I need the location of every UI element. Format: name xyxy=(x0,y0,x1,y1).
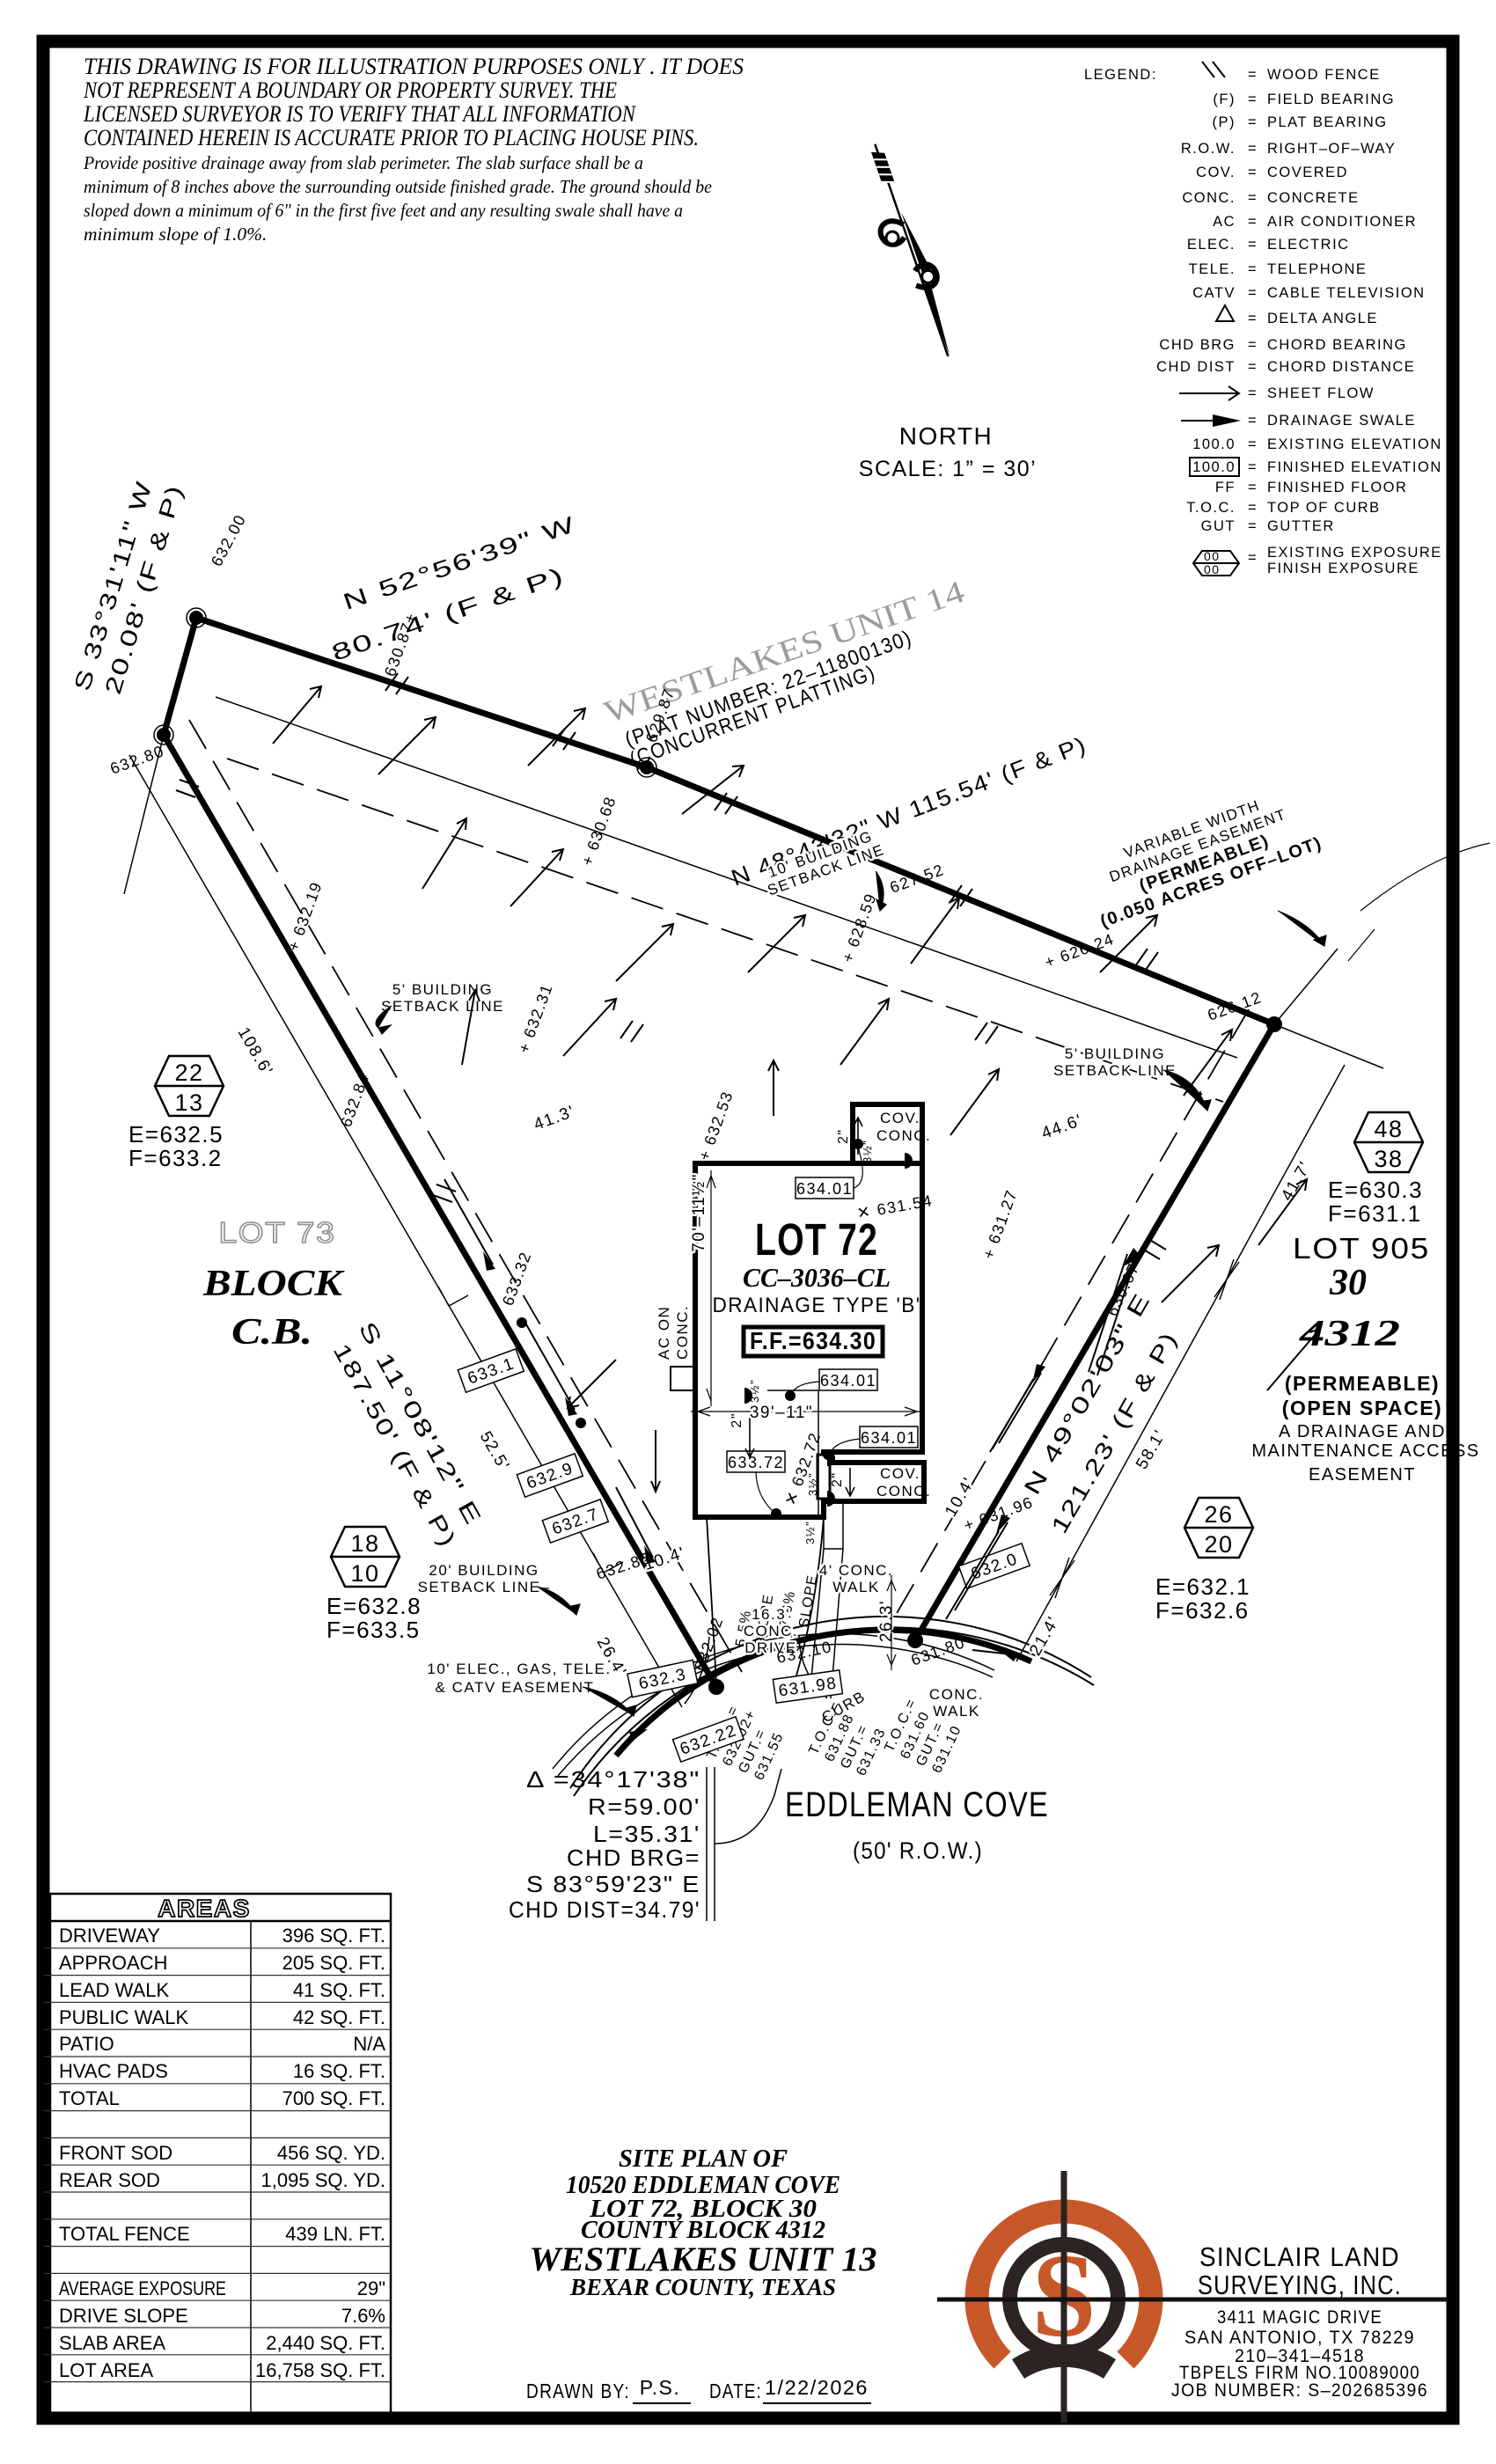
svg-text:100.0: 100.0 xyxy=(1192,459,1236,475)
svg-text:SETBACK LINE–: SETBACK LINE– xyxy=(418,1579,551,1595)
svg-text:GUTTER: GUTTER xyxy=(1267,518,1335,534)
svg-text:TELE.: TELE. xyxy=(1189,261,1236,277)
svg-text:F=633.5: F=633.5 xyxy=(326,1617,421,1643)
svg-text:396 SQ. FT.: 396 SQ. FT. xyxy=(282,1925,385,1947)
svg-text:1/22/2026: 1/22/2026 xyxy=(765,2376,869,2399)
svg-text:LOT AREA: LOT AREA xyxy=(59,2359,154,2381)
svg-text:38: 38 xyxy=(1374,1146,1403,1172)
svg-text:F=631.1: F=631.1 xyxy=(1328,1200,1422,1227)
svg-text:EXISTING ELEVATION: EXISTING ELEVATION xyxy=(1267,436,1442,452)
svg-text:CHORD DISTANCE: CHORD DISTANCE xyxy=(1267,359,1415,375)
svg-text:16.3': 16.3' xyxy=(752,1606,790,1623)
svg-text:CC–3036–CL: CC–3036–CL xyxy=(743,1262,891,1293)
svg-text:3411 MAGIC DRIVE: 3411 MAGIC DRIVE xyxy=(1217,2307,1382,2328)
svg-text:sloped down a minimum of 6" in: sloped down a minimum of 6" in the first… xyxy=(84,200,683,221)
svg-text:REAR SOD: REAR SOD xyxy=(59,2169,160,2191)
svg-text:THIS DRAWING IS FOR ILLUSTRATI: THIS DRAWING IS FOR ILLUSTRATION PURPOSE… xyxy=(84,53,744,79)
svg-text:DRAINAGE TYPE 'B': DRAINAGE TYPE 'B' xyxy=(713,1294,921,1317)
svg-text:=: = xyxy=(1248,359,1258,375)
svg-text:22: 22 xyxy=(174,1060,203,1086)
svg-text:FINISHED FLOOR: FINISHED FLOOR xyxy=(1267,480,1407,495)
svg-text:=: = xyxy=(1248,165,1258,180)
svg-text:R=59.00': R=59.00' xyxy=(588,1793,700,1820)
svg-text:42 SQ. FT.: 42 SQ. FT. xyxy=(293,2006,385,2028)
svg-text:DRIVEWAY: DRIVEWAY xyxy=(59,1925,160,1947)
svg-text:SINCLAIR LAND: SINCLAIR LAND xyxy=(1199,2241,1400,2272)
svg-text:13: 13 xyxy=(174,1089,203,1116)
svg-text:GUT: GUT xyxy=(1201,518,1236,534)
svg-text:=: = xyxy=(1248,459,1258,475)
svg-text:N/A: N/A xyxy=(353,2033,385,2055)
svg-text:S 83°59'23" E: S 83°59'23" E xyxy=(526,1871,700,1897)
svg-text:DRAWN BY:: DRAWN BY: xyxy=(526,2380,630,2402)
svg-text:634.01: 634.01 xyxy=(796,1180,853,1198)
svg-text:TELEPHONE: TELEPHONE xyxy=(1267,261,1367,277)
svg-text:700 SQ. FT.: 700 SQ. FT. xyxy=(282,2087,385,2109)
svg-text:41 SQ. FT.: 41 SQ. FT. xyxy=(293,1979,385,2001)
svg-text:2": 2" xyxy=(730,1412,744,1428)
svg-text:E=632.1: E=632.1 xyxy=(1155,1573,1250,1600)
svg-text:SHEET FLOW: SHEET FLOW xyxy=(1267,385,1375,401)
svg-text:3½": 3½" xyxy=(748,1379,761,1403)
svg-text:TOTAL: TOTAL xyxy=(59,2087,120,2109)
svg-text:=: = xyxy=(1248,92,1258,107)
svg-text:=: = xyxy=(1248,550,1258,566)
svg-text:CABLE TELEVISION: CABLE TELEVISION xyxy=(1267,285,1426,301)
svg-text:3½": 3½" xyxy=(861,1140,874,1163)
svg-text:29": 29" xyxy=(357,2277,385,2299)
svg-text:BLOCK: BLOCK xyxy=(202,1264,345,1304)
svg-text:634.01: 634.01 xyxy=(861,1429,917,1447)
svg-text:ELEC.: ELEC. xyxy=(1187,237,1236,253)
svg-text:PUBLIC WALK: PUBLIC WALK xyxy=(59,2006,188,2028)
svg-text:DATE:: DATE: xyxy=(709,2380,762,2402)
svg-text:FINISH EXPOSURE: FINISH EXPOSURE xyxy=(1267,561,1419,576)
svg-text:E=630.3: E=630.3 xyxy=(1328,1177,1423,1203)
svg-text:EXISTING EXPOSURE: EXISTING EXPOSURE xyxy=(1267,545,1442,561)
svg-text:WALK: WALK xyxy=(933,1703,980,1720)
svg-text:COV.: COV. xyxy=(1196,165,1236,180)
svg-text:JOB NUMBER: S–202685396: JOB NUMBER: S–202685396 xyxy=(1171,2380,1428,2401)
svg-text:F=632.6: F=632.6 xyxy=(1155,1597,1250,1624)
svg-text:MAINTENANCE ACCESS: MAINTENANCE ACCESS xyxy=(1251,1441,1479,1461)
svg-text:439 LN. FT.: 439 LN. FT. xyxy=(285,2223,385,2245)
svg-text:634.01: 634.01 xyxy=(820,1372,876,1390)
svg-text:39'–11": 39'–11" xyxy=(750,1404,813,1422)
svg-text:FF: FF xyxy=(1215,480,1236,495)
svg-text:LEAD WALK: LEAD WALK xyxy=(59,1979,169,2001)
svg-text:APPROACH: APPROACH xyxy=(59,1952,167,1974)
svg-text:100.0: 100.0 xyxy=(1192,436,1236,452)
svg-text:CONC.: CONC. xyxy=(929,1686,984,1703)
svg-text:(P): (P) xyxy=(1213,114,1236,130)
svg-text:4312: 4312 xyxy=(1299,1314,1400,1354)
svg-text:Δ =34°17'38": Δ =34°17'38" xyxy=(526,1766,700,1793)
svg-text:CHD DIST=34.79': CHD DIST=34.79' xyxy=(509,1896,700,1923)
svg-text:TOTAL FENCE: TOTAL FENCE xyxy=(59,2223,190,2245)
svg-text:2": 2" xyxy=(830,1471,845,1487)
svg-text:2,440 SQ. FT.: 2,440 SQ. FT. xyxy=(266,2332,385,2354)
svg-text:DELTA ANGLE: DELTA ANGLE xyxy=(1267,311,1378,326)
svg-text:HVAC PADS: HVAC PADS xyxy=(59,2060,168,2082)
svg-text:(PERMEABLE): (PERMEABLE) xyxy=(1285,1372,1440,1395)
svg-text:COVERED: COVERED xyxy=(1267,165,1348,180)
svg-text:SETBACK LINE: SETBACK LINE xyxy=(1053,1062,1177,1079)
svg-text:16 SQ. FT.: 16 SQ. FT. xyxy=(293,2060,385,2082)
svg-text:=: = xyxy=(1248,311,1258,326)
svg-text:7.6%: 7.6% xyxy=(341,2305,385,2327)
svg-text:=: = xyxy=(1248,436,1258,452)
svg-text:R.O.W.: R.O.W. xyxy=(1181,141,1236,157)
svg-text:CHD BRG=: CHD BRG= xyxy=(567,1844,700,1871)
svg-text:16,758 SQ. FT.: 16,758 SQ. FT. xyxy=(255,2359,385,2381)
svg-text:NOT REPRESENT A BOUNDARY OR PR: NOT REPRESENT A BOUNDARY OR PROPERTY SUR… xyxy=(83,77,617,103)
svg-text:4' CONC.: 4' CONC. xyxy=(819,1562,893,1579)
svg-text:(F): (F) xyxy=(1213,92,1236,107)
svg-text:=: = xyxy=(1248,518,1258,534)
svg-text:LOT 73: LOT 73 xyxy=(219,1216,336,1249)
svg-text:A DRAINAGE AND: A DRAINAGE AND xyxy=(1279,1422,1446,1441)
svg-text:ELECTRIC: ELECTRIC xyxy=(1267,237,1350,253)
svg-text:SURVEYING, INC.: SURVEYING, INC. xyxy=(1198,2270,1402,2300)
svg-text:SCALE: 1” = 30’: SCALE: 1” = 30’ xyxy=(859,457,1037,481)
svg-text:SITE PLAN OF: SITE PLAN OF xyxy=(619,2145,788,2173)
svg-text:26.3': 26.3' xyxy=(877,1600,896,1642)
svg-text:minimum slope of 1.0%.: minimum slope of 1.0%. xyxy=(84,224,267,245)
svg-text:WALK: WALK xyxy=(832,1579,880,1595)
svg-text:=: = xyxy=(1248,261,1258,277)
svg-text:10: 10 xyxy=(350,1560,379,1587)
svg-text:FRONT SOD: FRONT SOD xyxy=(59,2142,172,2164)
svg-text:AC ON: AC ON xyxy=(656,1306,672,1360)
svg-text:LOT 905: LOT 905 xyxy=(1293,1232,1430,1265)
svg-text:633.72: 633.72 xyxy=(728,1454,784,1471)
svg-text:=: = xyxy=(1248,285,1258,301)
svg-text:E=632.8: E=632.8 xyxy=(326,1593,422,1619)
svg-text:20' BUILDING: 20' BUILDING xyxy=(429,1562,539,1579)
svg-text:EDDLEMAN COVE: EDDLEMAN COVE xyxy=(785,1786,1049,1824)
svg-text:18: 18 xyxy=(350,1530,379,1557)
svg-text:PATIO: PATIO xyxy=(59,2033,114,2055)
svg-text:48: 48 xyxy=(1374,1116,1403,1142)
svg-text:2": 2" xyxy=(836,1128,851,1144)
svg-text:=: = xyxy=(1248,480,1258,495)
svg-text:EASEMENT: EASEMENT xyxy=(1309,1465,1416,1485)
svg-text:=: = xyxy=(1248,385,1258,401)
svg-text:456 SQ. YD.: 456 SQ. YD. xyxy=(277,2142,385,2164)
svg-text:LEGEND:: LEGEND: xyxy=(1084,67,1157,83)
svg-text:AIR CONDITIONER: AIR CONDITIONER xyxy=(1267,214,1417,230)
svg-text:F=633.2: F=633.2 xyxy=(128,1145,223,1171)
svg-text:=: = xyxy=(1248,337,1258,353)
svg-text:minimum of 8 inches above the: minimum of 8 inches above the surroundin… xyxy=(84,176,712,197)
svg-text:AVERAGE EXPOSURE: AVERAGE EXPOSURE xyxy=(59,2277,226,2299)
svg-text:CONC.: CONC. xyxy=(744,1623,798,1639)
svg-text:CONC.: CONC. xyxy=(674,1305,691,1360)
svg-text:RIGHT–OF–WAY: RIGHT–OF–WAY xyxy=(1267,141,1396,157)
svg-text:(OPEN SPACE): (OPEN SPACE) xyxy=(1282,1397,1442,1419)
svg-text:CHD BRG: CHD BRG xyxy=(1159,337,1236,353)
svg-text:COV.: COV. xyxy=(880,1110,920,1126)
svg-text:FIELD BEARING: FIELD BEARING xyxy=(1267,92,1395,107)
svg-text:CONC.: CONC. xyxy=(876,1483,931,1500)
svg-text:COV.: COV. xyxy=(880,1465,920,1482)
svg-text:CHD DIST: CHD DIST xyxy=(1156,359,1236,375)
svg-text:& CATV EASEMENT: & CATV EASEMENT xyxy=(436,1679,595,1696)
svg-text:AREAS: AREAS xyxy=(158,1895,251,1922)
svg-text:20: 20 xyxy=(1204,1531,1233,1558)
svg-text:L=35.31': L=35.31' xyxy=(593,1821,700,1847)
svg-text:BEXAR COUNTY, TEXAS: BEXAR COUNTY, TEXAS xyxy=(569,2274,836,2300)
svg-text:=: = xyxy=(1248,237,1258,253)
svg-text:Provide positive drainage away: Provide positive drainage away from slab… xyxy=(83,152,643,173)
svg-text:=: = xyxy=(1248,114,1258,130)
svg-text:SAN ANTONIO, TX 78229: SAN ANTONIO, TX 78229 xyxy=(1184,2328,1415,2348)
svg-text:LICENSED SURVEYOR IS TO VERIFY: LICENSED SURVEYOR IS TO VERIFY THAT ALL … xyxy=(83,100,636,127)
svg-text:DRAINAGE SWALE: DRAINAGE SWALE xyxy=(1267,413,1416,429)
svg-text:70'–11½": 70'–11½" xyxy=(690,1173,708,1252)
svg-text:=: = xyxy=(1248,141,1258,157)
svg-text:T.O.C.: T.O.C. xyxy=(1186,500,1236,516)
svg-text:=: = xyxy=(1248,500,1258,516)
svg-text:=: = xyxy=(1248,214,1258,230)
svg-text:SETBACK LINE: SETBACK LINE xyxy=(381,998,504,1015)
svg-text:26: 26 xyxy=(1204,1501,1233,1528)
svg-text:TOP OF CURB: TOP OF CURB xyxy=(1267,500,1381,516)
svg-text:5' BUILDING: 5' BUILDING xyxy=(1065,1045,1165,1062)
svg-text:E=632.5: E=632.5 xyxy=(128,1121,224,1148)
svg-text:CONC.: CONC. xyxy=(876,1127,931,1144)
svg-text:00: 00 xyxy=(1204,562,1221,576)
svg-text:CONCRETE: CONCRETE xyxy=(1267,190,1360,206)
svg-text:CATV: CATV xyxy=(1192,285,1236,301)
svg-text:DRIVE SLOPE: DRIVE SLOPE xyxy=(59,2305,188,2327)
svg-text:3½": 3½" xyxy=(803,1521,817,1544)
svg-text:WOOD FENCE: WOOD FENCE xyxy=(1267,67,1381,83)
svg-text:NORTH: NORTH xyxy=(899,422,994,450)
svg-text:30: 30 xyxy=(1329,1263,1367,1303)
svg-text:1,095 SQ. YD.: 1,095 SQ. YD. xyxy=(261,2169,385,2191)
svg-text:=: = xyxy=(1248,413,1258,429)
svg-text:SLAB AREA: SLAB AREA xyxy=(59,2332,165,2354)
svg-text:F.F.=634.30: F.F.=634.30 xyxy=(750,1327,876,1354)
svg-text:10' ELEC., GAS, TELE.: 10' ELEC., GAS, TELE. xyxy=(427,1661,611,1677)
svg-text:P.S.: P.S. xyxy=(640,2376,681,2399)
svg-text:CHORD BEARING: CHORD BEARING xyxy=(1267,337,1407,353)
svg-text:=: = xyxy=(1248,190,1258,206)
svg-text:WESTLAKES UNIT 13: WESTLAKES UNIT 13 xyxy=(530,2240,877,2278)
svg-text:AC: AC xyxy=(1213,214,1236,230)
svg-text:CONTAINED HEREIN IS ACCURATE P: CONTAINED HEREIN IS ACCURATE PRIOR TO PL… xyxy=(84,124,699,150)
svg-text:PLAT BEARING: PLAT BEARING xyxy=(1267,114,1388,130)
svg-text:00: 00 xyxy=(1204,549,1221,563)
svg-text:=: = xyxy=(1248,67,1258,83)
svg-text:CONC.: CONC. xyxy=(1182,190,1236,206)
svg-text:C.B.: C.B. xyxy=(231,1312,312,1353)
svg-text:205 SQ. FT.: 205 SQ. FT. xyxy=(282,1952,385,1974)
svg-text:FINISHED ELEVATION: FINISHED ELEVATION xyxy=(1267,459,1442,475)
svg-text:(50' R.O.W.): (50' R.O.W.) xyxy=(853,1837,983,1864)
